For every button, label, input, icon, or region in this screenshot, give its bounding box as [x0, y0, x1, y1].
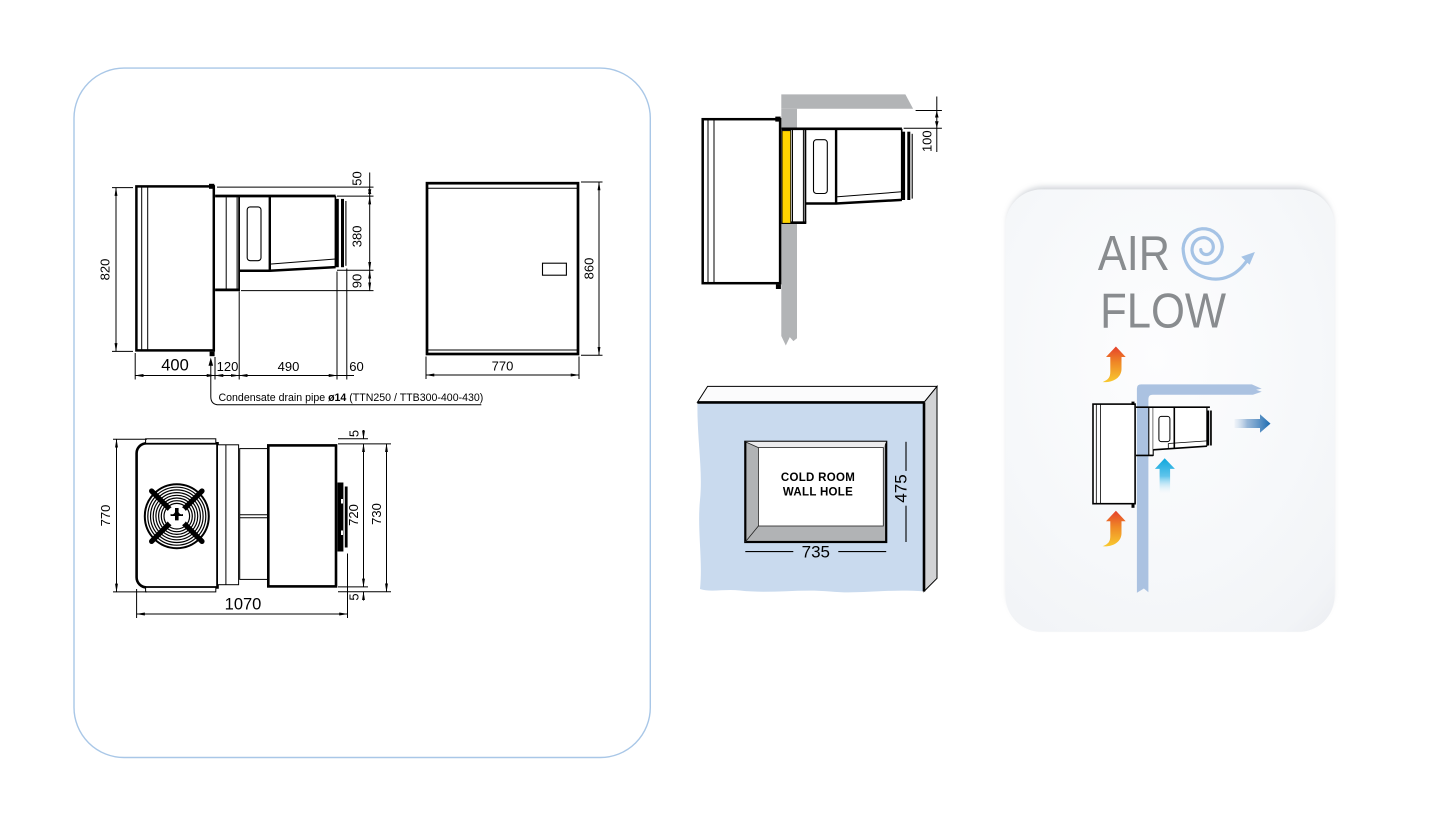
svg-text:860: 860	[582, 258, 597, 280]
svg-text:475: 475	[892, 474, 911, 502]
svg-text:FLOW: FLOW	[1100, 285, 1227, 339]
svg-text:490: 490	[278, 359, 300, 374]
svg-text:WALL HOLE: WALL HOLE	[783, 487, 853, 499]
svg-text:770: 770	[98, 505, 113, 527]
svg-text:730: 730	[369, 503, 384, 525]
svg-text:90: 90	[350, 274, 365, 288]
svg-text:COLD ROOM: COLD ROOM	[781, 472, 855, 484]
svg-text:60: 60	[349, 359, 363, 374]
svg-text:5: 5	[347, 430, 362, 437]
svg-text:120: 120	[217, 359, 239, 374]
svg-text:100: 100	[920, 130, 935, 152]
svg-text:50: 50	[350, 171, 365, 185]
svg-text:720: 720	[346, 504, 361, 526]
svg-text:400: 400	[161, 357, 189, 375]
svg-text:735: 735	[802, 543, 830, 562]
svg-text:380: 380	[350, 226, 365, 248]
svg-text:Condensate drain pipe ø14 (TT: Condensate drain pipe ø14 (TTN250 / TTB3…	[219, 392, 484, 404]
svg-text:770: 770	[492, 359, 514, 374]
svg-text:1070: 1070	[225, 596, 262, 614]
svg-text:820: 820	[98, 259, 113, 281]
svg-text:5: 5	[347, 593, 362, 600]
svg-text:AIR: AIR	[1098, 227, 1170, 281]
